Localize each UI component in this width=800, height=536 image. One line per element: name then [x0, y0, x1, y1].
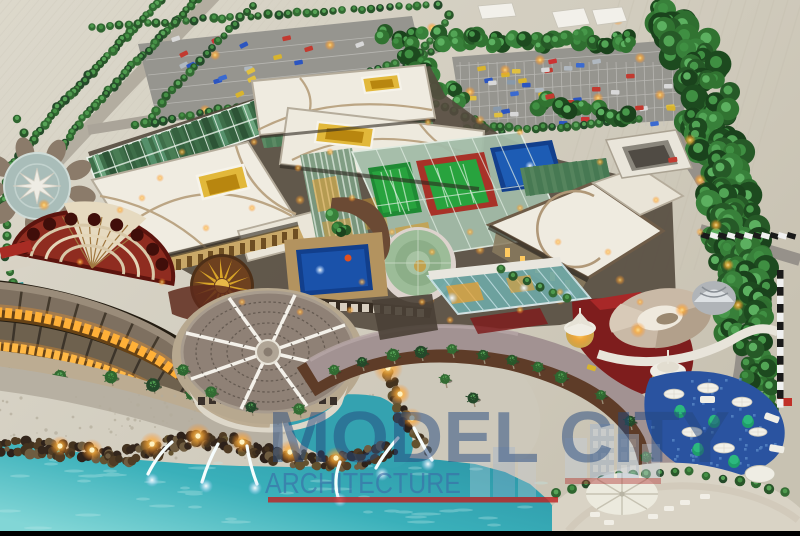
- svg-text:ARCHITECTURE: ARCHITECTURE: [265, 468, 461, 500]
- svg-text:MODEL CITY: MODEL CITY: [268, 398, 730, 478]
